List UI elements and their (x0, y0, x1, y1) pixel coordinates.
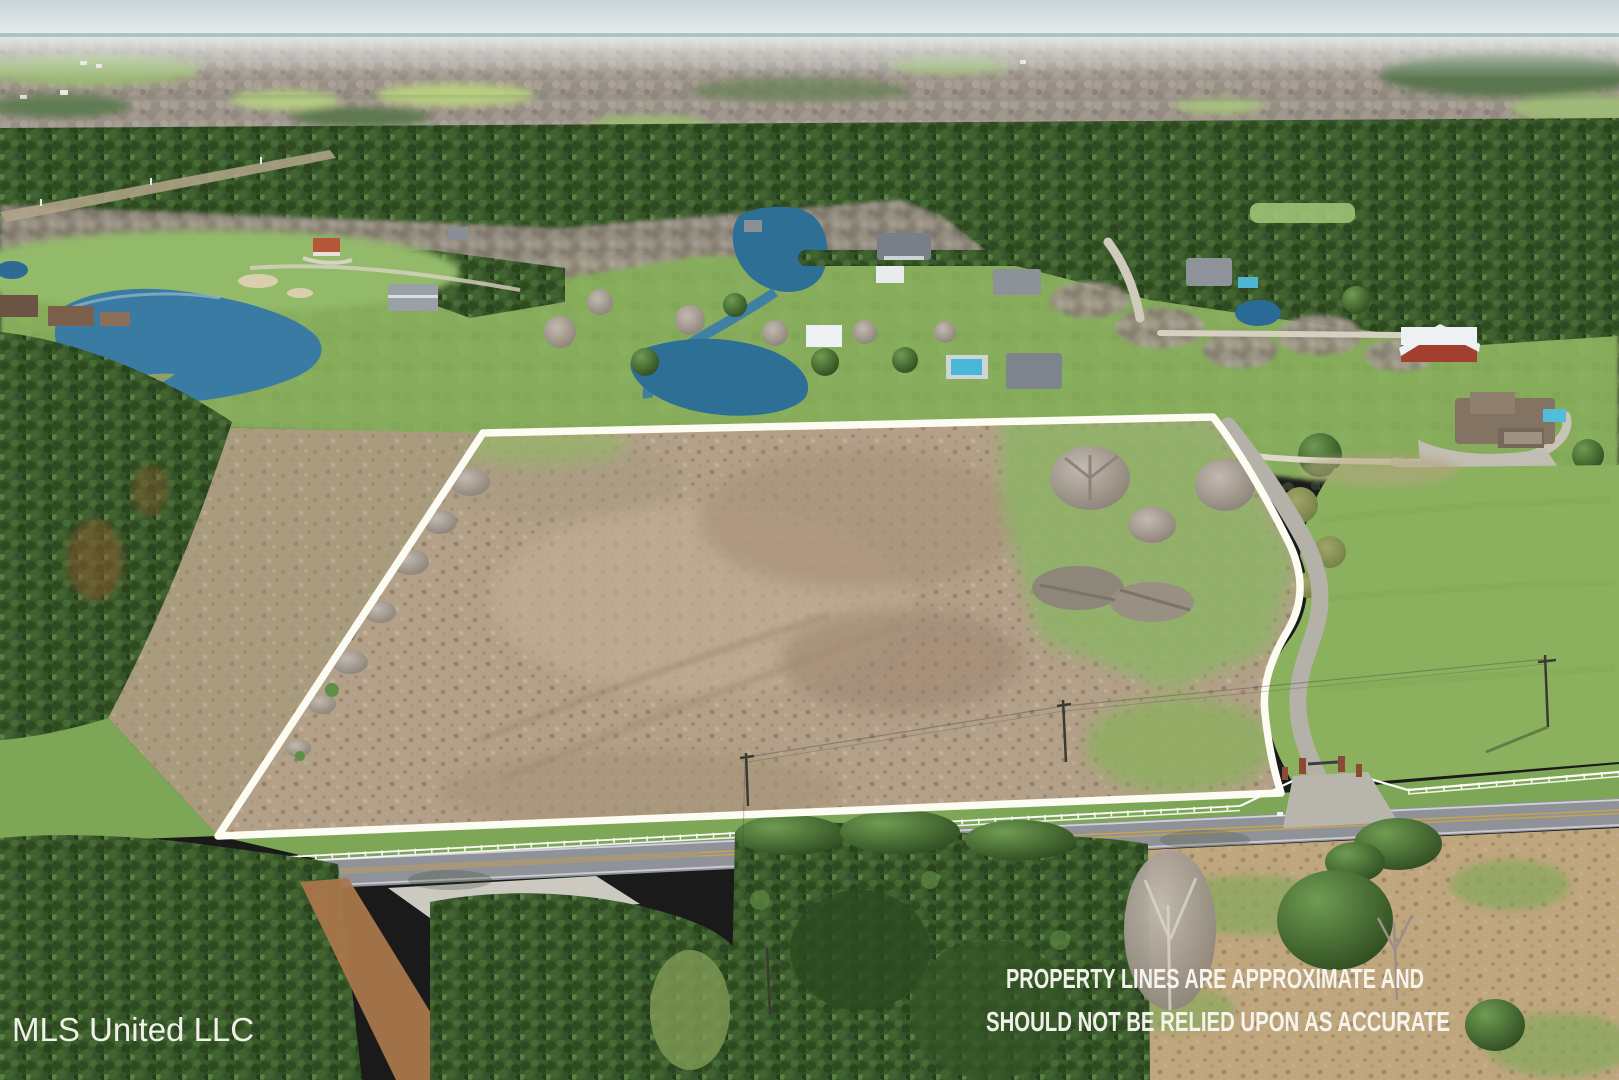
red-barn (1399, 324, 1480, 362)
aerial-photo-canvas: MLS United LLC PROPERTY LINES ARE APPROX… (0, 0, 1619, 1080)
swimming-pool (1238, 277, 1258, 288)
dead-pine-patch (67, 520, 123, 600)
right-pond (1235, 300, 1281, 326)
white-shed (876, 266, 904, 283)
small-cabin (448, 227, 468, 240)
pond-cabin (744, 220, 762, 232)
gray-barn (388, 284, 438, 311)
entrance-sign (1277, 812, 1283, 816)
disclaimer-line-2: SHOULD NOT BE RELIED UPON AS ACCURATE (986, 1006, 1450, 1037)
white-gable-building (806, 325, 842, 347)
watermark-brokerage: MLS United LLC (12, 1011, 254, 1048)
forest-clearing (1250, 203, 1355, 223)
center-tree-mass (730, 810, 1150, 1080)
gray-hip-house (877, 233, 931, 260)
white-house (993, 269, 1041, 295)
gate-bar (1308, 762, 1338, 764)
disclaimer-line-1: PROPERTY LINES ARE APPROXIMATE AND (1006, 963, 1424, 994)
swimming-pool (951, 359, 982, 375)
field-tree (1277, 870, 1393, 970)
aerial-photo: MLS United LLC PROPERTY LINES ARE APPROX… (0, 0, 1619, 1080)
swimming-pool (1543, 409, 1566, 422)
sky (0, 0, 1619, 40)
